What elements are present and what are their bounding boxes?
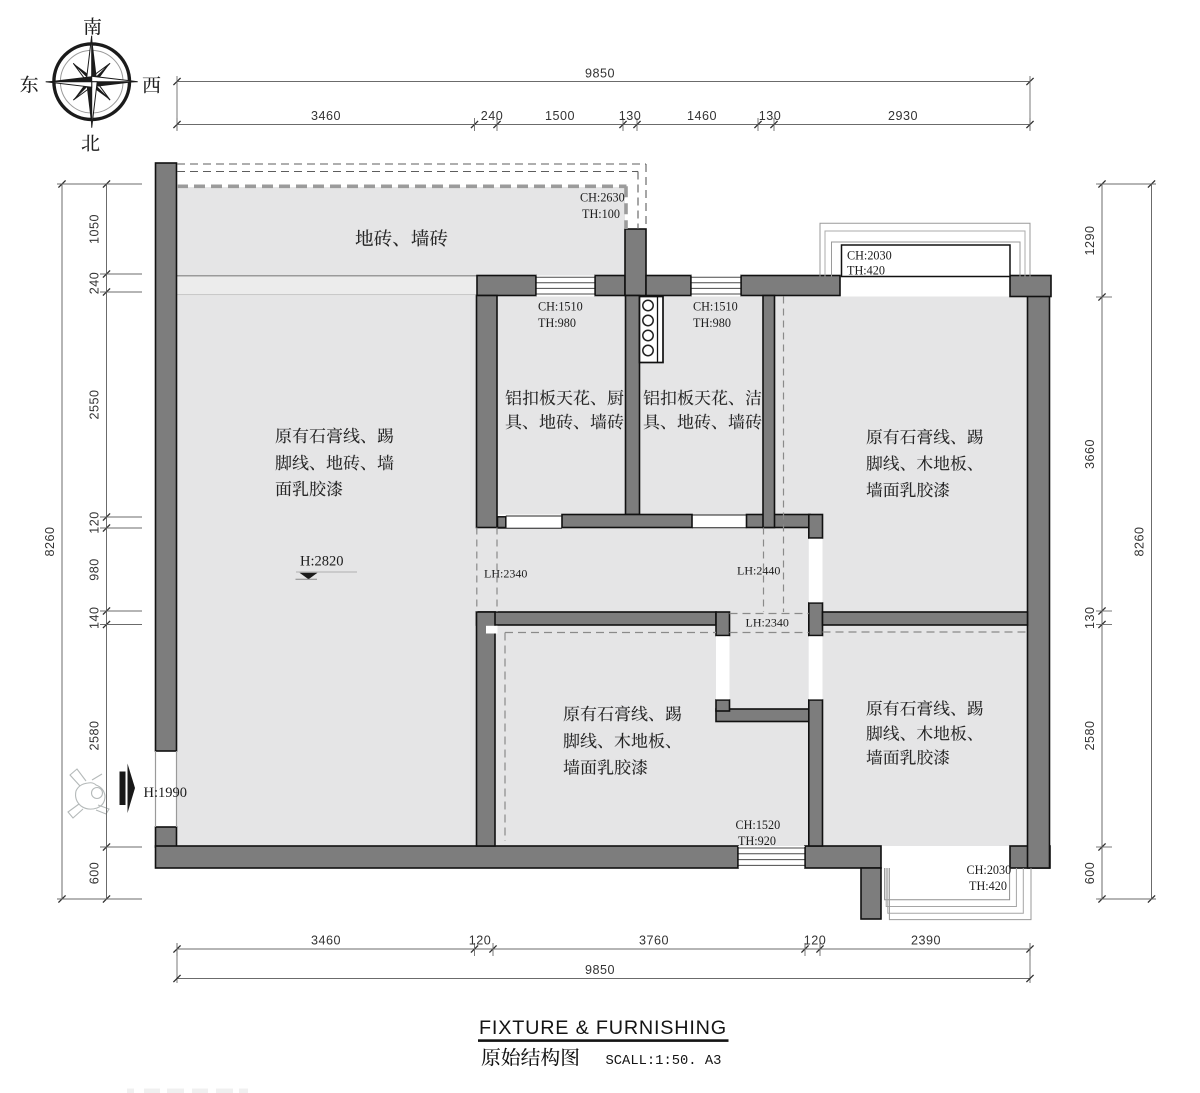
svg-text:120: 120 — [804, 934, 827, 948]
svg-text:FIXTURE & FURNISHING: FIXTURE & FURNISHING — [479, 1017, 727, 1039]
svg-text:1460: 1460 — [687, 109, 717, 123]
svg-text:TH:980: TH:980 — [538, 316, 576, 330]
svg-text:2580: 2580 — [88, 720, 102, 750]
svg-text:240: 240 — [481, 109, 504, 123]
svg-text:1290: 1290 — [1083, 225, 1097, 255]
svg-text:3460: 3460 — [311, 934, 341, 948]
svg-text:2390: 2390 — [911, 934, 941, 948]
svg-text:8260: 8260 — [43, 526, 57, 556]
svg-text:3460: 3460 — [311, 109, 341, 123]
svg-text:120: 120 — [88, 511, 102, 534]
svg-text:CH:1520: CH:1520 — [736, 818, 781, 832]
svg-text:2580: 2580 — [1083, 720, 1097, 750]
svg-text:980: 980 — [88, 558, 102, 581]
svg-text:9850: 9850 — [585, 67, 615, 81]
svg-text:9850: 9850 — [585, 963, 615, 977]
svg-text:3660: 3660 — [1083, 439, 1097, 469]
svg-text:130: 130 — [759, 109, 782, 123]
svg-text:CH:2030: CH:2030 — [967, 863, 1012, 877]
svg-text:TH:100: TH:100 — [582, 207, 620, 221]
svg-text:130: 130 — [1083, 607, 1097, 630]
svg-text:CH:1510: CH:1510 — [538, 300, 583, 314]
svg-text:CH:2030: CH:2030 — [847, 249, 892, 263]
svg-text:CH:1510: CH:1510 — [693, 300, 738, 314]
svg-text:TH:420: TH:420 — [969, 879, 1007, 893]
svg-text:LH:2340: LH:2340 — [746, 616, 789, 630]
svg-text:240: 240 — [88, 272, 102, 295]
svg-text:1500: 1500 — [545, 109, 575, 123]
svg-text:130: 130 — [619, 109, 642, 123]
svg-text:600: 600 — [88, 862, 102, 885]
svg-text:TH:920: TH:920 — [738, 834, 776, 848]
svg-text:8260: 8260 — [1133, 526, 1147, 556]
svg-text:CH:2630: CH:2630 — [580, 191, 625, 205]
svg-text:LH:2340: LH:2340 — [484, 567, 527, 581]
svg-text:H:1990: H:1990 — [144, 785, 188, 801]
svg-text:2550: 2550 — [88, 389, 102, 419]
svg-text:TH:980: TH:980 — [693, 316, 731, 330]
svg-text:2930: 2930 — [888, 109, 918, 123]
svg-text:H:2820: H:2820 — [300, 554, 344, 570]
svg-text:TH:420: TH:420 — [847, 264, 885, 278]
svg-text:140: 140 — [88, 607, 102, 630]
svg-text:120: 120 — [469, 934, 492, 948]
svg-text:600: 600 — [1083, 862, 1097, 885]
svg-text:LH:2440: LH:2440 — [737, 564, 780, 578]
svg-text:1050: 1050 — [88, 214, 102, 244]
svg-text:3760: 3760 — [639, 934, 669, 948]
svg-text:SCALL:1:50. A3: SCALL:1:50. A3 — [606, 1054, 722, 1069]
